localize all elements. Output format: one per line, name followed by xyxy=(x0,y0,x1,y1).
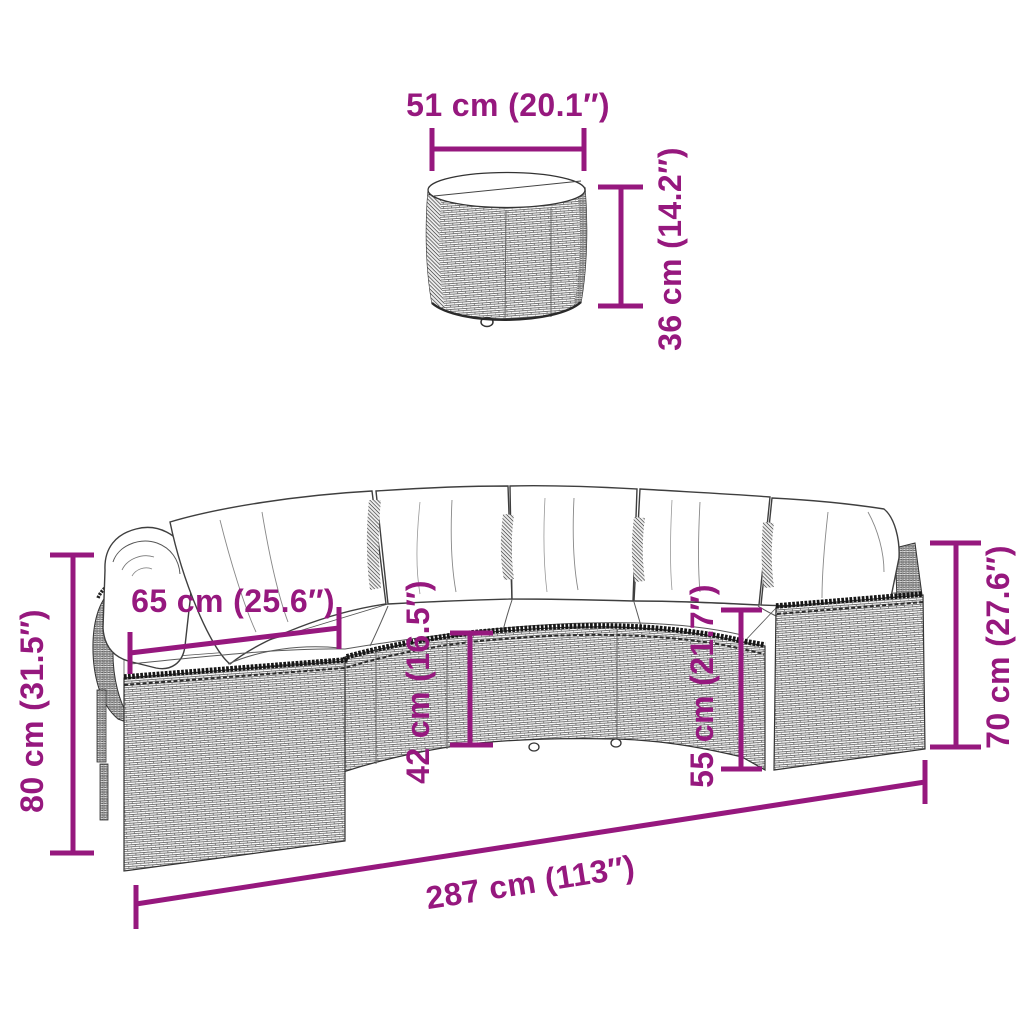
svg-text:51 cm (20.1″): 51 cm (20.1″) xyxy=(406,87,610,123)
svg-text:70 cm (27.6″): 70 cm (27.6″) xyxy=(980,545,1016,749)
svg-text:36 cm (14.2″): 36 cm (14.2″) xyxy=(652,147,688,351)
svg-text:55 cm (21.7″): 55 cm (21.7″) xyxy=(684,584,720,788)
svg-text:42 cm (16.5″): 42 cm (16.5″) xyxy=(400,580,436,784)
svg-text:65 cm (25.6″): 65 cm (25.6″) xyxy=(131,583,335,619)
svg-text:80 cm (31.5″): 80 cm (31.5″) xyxy=(14,609,50,813)
